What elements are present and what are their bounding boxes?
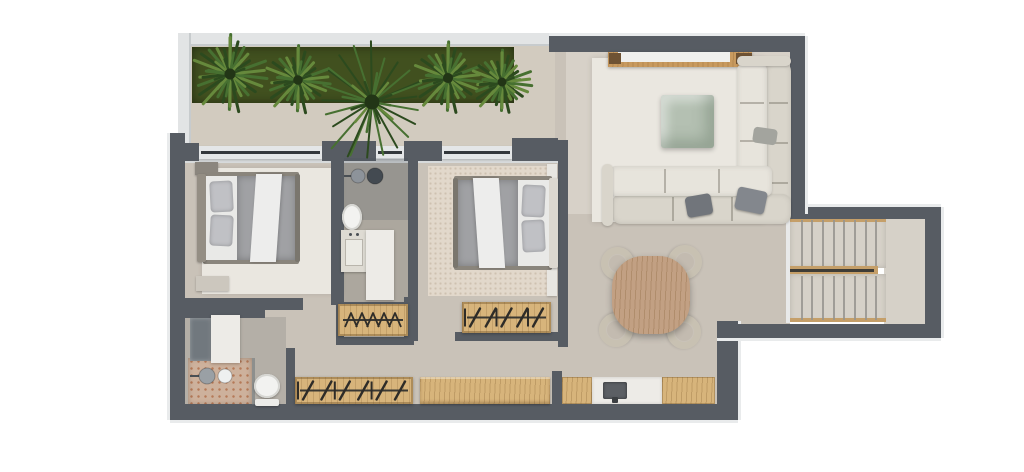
sofa-throw-pillow-1 bbox=[684, 193, 713, 218]
bedroom1-bed-body bbox=[197, 172, 301, 264]
stairs-left-trim bbox=[786, 218, 790, 323]
terrace-plant-5 bbox=[465, 45, 539, 119]
bedroom1-bench bbox=[196, 276, 229, 291]
coffee-table bbox=[661, 95, 714, 148]
window-bedroom1 bbox=[199, 146, 322, 159]
window-bedroom2 bbox=[442, 146, 512, 159]
wall-living-left bbox=[558, 140, 568, 347]
sofa-arm-top bbox=[737, 56, 791, 66]
hallway-sideboard bbox=[420, 377, 550, 404]
hallway-closet-hangers bbox=[295, 377, 413, 404]
media-console-end-left bbox=[609, 53, 621, 64]
floor-plan bbox=[0, 0, 1024, 472]
shower2-head bbox=[190, 365, 234, 387]
shower1-head bbox=[344, 165, 386, 187]
wall-kitchen-stub bbox=[552, 371, 562, 406]
wall-living-top bbox=[549, 36, 805, 52]
kitchen-sink bbox=[603, 382, 627, 399]
wall-bedroom2-door-jamb bbox=[410, 297, 418, 341]
wall-living-right bbox=[790, 36, 805, 214]
bathroom2-mirror bbox=[190, 318, 211, 361]
dining-table bbox=[612, 256, 690, 334]
wall-closet1-bottom bbox=[336, 337, 412, 345]
bathroom1-toilet bbox=[342, 204, 362, 230]
media-console-top bbox=[618, 52, 730, 62]
wall-bedroom2-bottom bbox=[455, 332, 558, 341]
wall-bath1-bedroom2 bbox=[408, 155, 418, 297]
wall-balcony-pier-4 bbox=[512, 138, 558, 161]
kitchen-cabinet-left bbox=[562, 377, 592, 404]
stairs-lower-flight bbox=[790, 274, 886, 322]
closet1-hanger-rail bbox=[338, 304, 408, 336]
stairs-upper-flight bbox=[790, 218, 886, 268]
sofa-throw-pillow-3 bbox=[752, 126, 778, 145]
bathroom1-vanity bbox=[366, 230, 394, 300]
stair-landing-floor bbox=[884, 219, 925, 324]
wall-left bbox=[170, 133, 185, 420]
wall-wing-right bbox=[925, 207, 941, 338]
bedroom2-bed bbox=[452, 176, 558, 270]
wall-wing-bottom bbox=[717, 324, 941, 338]
wall-bath2-right bbox=[286, 348, 295, 405]
window-bedroom2-glass bbox=[444, 151, 510, 154]
kitchen-cabinet-right bbox=[662, 377, 715, 404]
window-bedroom1-glass bbox=[201, 151, 320, 154]
bedroom2-bed-body bbox=[452, 176, 558, 270]
bathroom2-toilet bbox=[254, 374, 280, 406]
bathroom2-vanity bbox=[211, 315, 240, 363]
bathroom1-basin bbox=[341, 230, 367, 272]
bedroom2-wardrobe bbox=[462, 302, 551, 333]
wall-bottom bbox=[170, 404, 738, 420]
bedroom1-bed bbox=[197, 172, 301, 264]
sofa-arm-left bbox=[602, 164, 613, 226]
wall-wing-top bbox=[790, 207, 941, 219]
wall-balcony-pier-1 bbox=[185, 143, 199, 161]
